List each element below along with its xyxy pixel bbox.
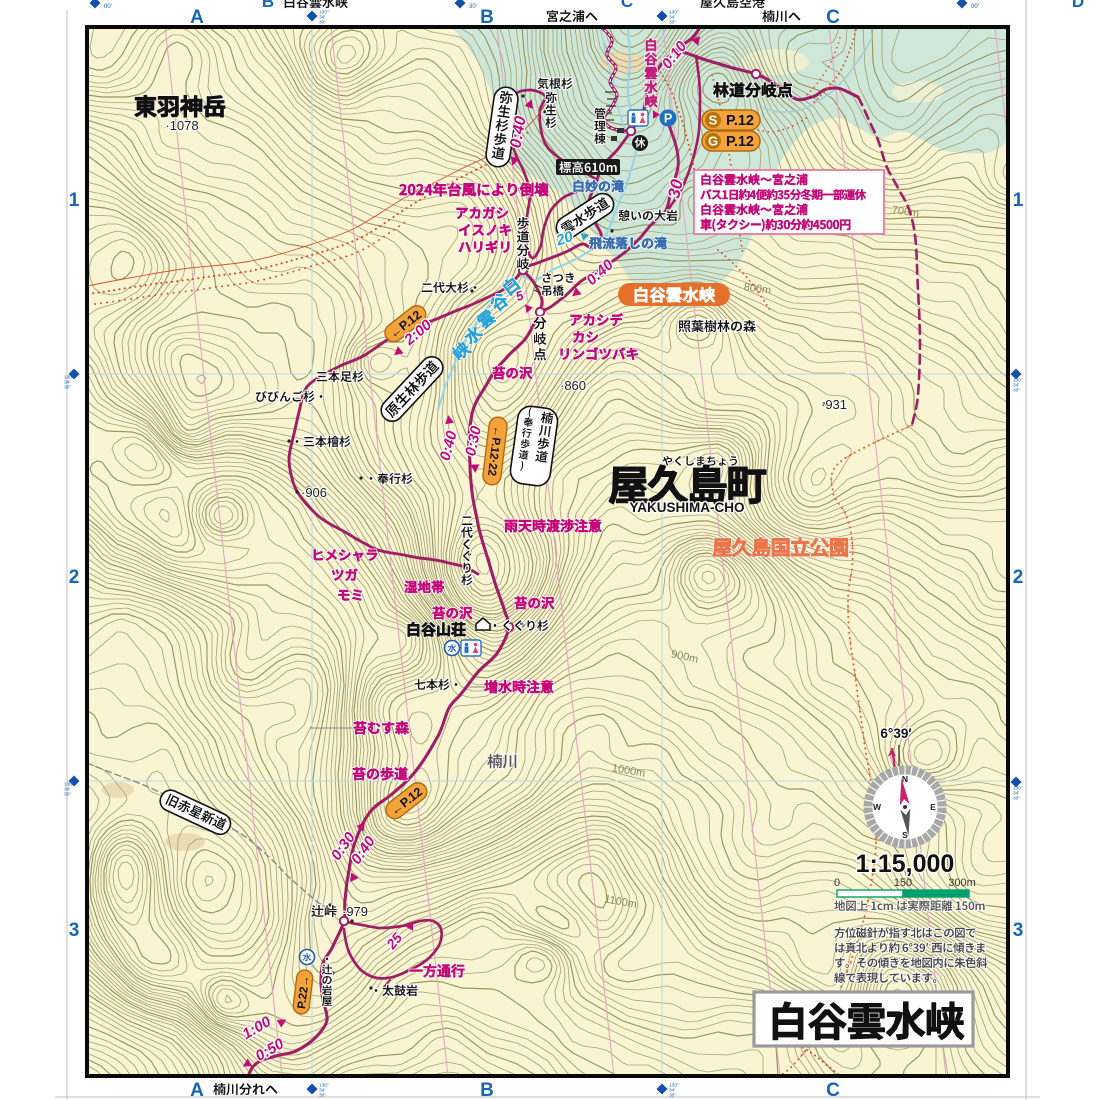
svg-text:E: E [930, 802, 936, 812]
svg-text:A: A [190, 7, 204, 28]
svg-text:·906: ·906 [301, 485, 327, 500]
svg-text:S: S [709, 113, 718, 128]
svg-text:·860: ·860 [560, 378, 586, 393]
svg-text:30″: 30″ [1013, 388, 1020, 394]
svg-text:B: B [262, 0, 274, 11]
svg-text:30′: 30′ [469, 4, 478, 10]
svg-text:B: B [480, 7, 494, 28]
svg-text:P: P [664, 112, 672, 126]
svg-text:00′: 00′ [971, 4, 980, 10]
svg-text:150: 150 [894, 877, 912, 889]
svg-text:2: 2 [1013, 567, 1024, 588]
svg-text:D: D [1072, 0, 1084, 11]
svg-text:G: G [708, 134, 718, 149]
svg-text:30″: 30″ [669, 1093, 676, 1099]
svg-text:3: 3 [69, 920, 80, 941]
svg-text:C: C [826, 7, 840, 28]
svg-text:00′: 00′ [104, 4, 113, 10]
svg-text:0: 0 [834, 877, 840, 889]
svg-text:P.12: P.12 [726, 113, 754, 129]
svg-text:30″: 30″ [319, 1093, 326, 1099]
svg-text:N: N [902, 774, 908, 784]
svg-text:30″: 30″ [1013, 796, 1020, 802]
svg-text:6°39′: 6°39′ [880, 726, 911, 741]
svg-text:30″: 30″ [64, 385, 71, 391]
svg-text:A: A [190, 1080, 204, 1100]
svg-text:·1078: ·1078 [165, 118, 198, 133]
svg-text:1: 1 [1013, 190, 1024, 211]
svg-text:30″: 30″ [669, 20, 676, 26]
svg-text:3: 3 [1013, 920, 1024, 941]
svg-text:·931: ·931 [821, 397, 847, 412]
svg-text:30″: 30″ [319, 20, 326, 26]
svg-text:C: C [826, 1080, 840, 1100]
svg-text:2: 2 [69, 567, 80, 588]
svg-text:1: 1 [69, 190, 80, 211]
svg-text:YAKUSHIMA-CHO: YAKUSHIMA-CHO [629, 500, 744, 515]
svg-text:B: B [480, 1080, 494, 1100]
svg-text:300m: 300m [948, 877, 976, 889]
svg-text:C: C [621, 0, 633, 11]
svg-text:1:15,000: 1:15,000 [856, 850, 955, 878]
svg-text:·979: ·979 [342, 904, 368, 919]
svg-text:W: W [873, 802, 882, 812]
svg-text:P.12: P.12 [726, 134, 754, 150]
svg-text:30″: 30″ [64, 792, 71, 798]
